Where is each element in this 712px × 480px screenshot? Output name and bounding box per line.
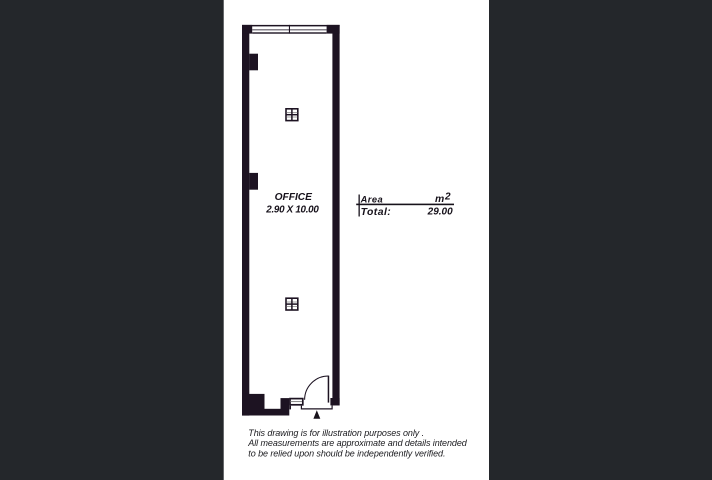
svg-text:to be relied upon should be in: to be relied upon should be independentl…: [248, 449, 445, 459]
svg-text:m: m: [435, 194, 444, 205]
svg-text:This drawing is for illustrati: This drawing is for illustration purpose…: [248, 428, 424, 438]
svg-text:29.00: 29.00: [427, 207, 453, 218]
svg-text:All measurements are approxima: All measurements are approximate and det…: [247, 438, 467, 448]
svg-text:Area: Area: [360, 195, 383, 205]
svg-text:2: 2: [444, 192, 451, 203]
svg-text:Total:: Total:: [361, 207, 392, 218]
svg-text:2.90 X 10.00: 2.90 X 10.00: [265, 205, 319, 216]
svg-text:OFFICE: OFFICE: [275, 192, 314, 203]
